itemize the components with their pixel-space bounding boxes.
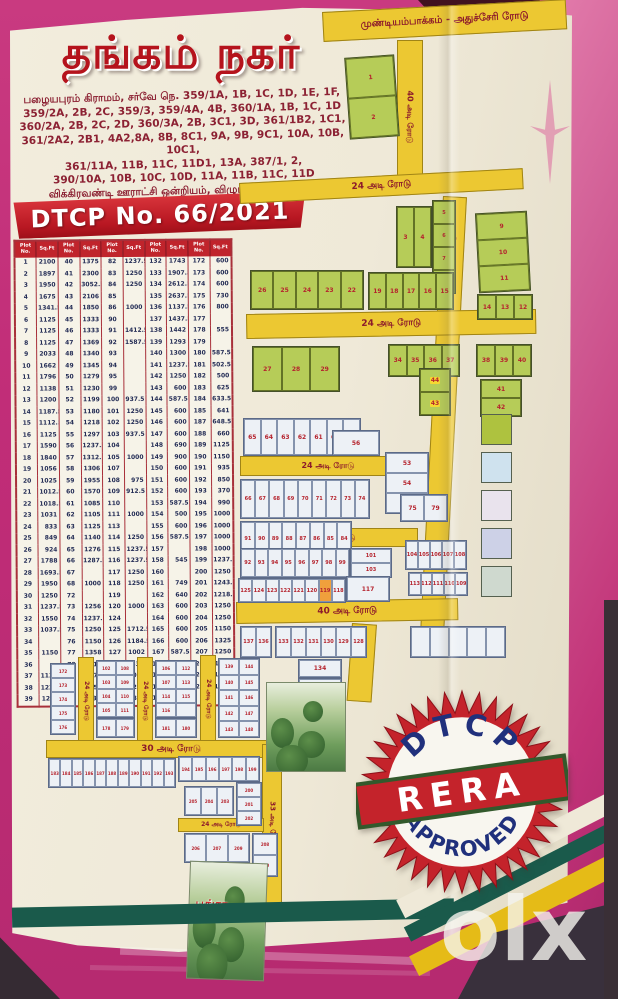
plot-cell: 67 [255,480,269,518]
plotno-cell: 202 [190,589,212,601]
plotno-cell: 185 [189,405,211,417]
plotno-cell: 18 [16,453,38,465]
plot-cell: 99 [336,549,350,577]
plot-cell: 79 [424,495,447,521]
plot-cell: 4 [414,207,431,267]
sqft-cell [210,336,232,348]
plotno-cell: 58 [59,464,81,476]
sqft-cell: 587.5 [169,647,191,659]
road-label: 40 அடி ரோடு [405,90,415,143]
sqft-cell: 1412.5 [123,325,145,337]
plot-cluster: 56 [332,430,380,456]
sqft-cell: 1312.5 [81,452,103,464]
plot-cell: 44 [420,369,450,392]
sqft-cell: 1250 [125,578,147,590]
plot-cell: 107 [156,675,176,689]
sqft-cell: 1955 [81,475,103,487]
plot-cell: 12 [514,295,532,319]
road-label: 24 அடி ரோடு [201,821,241,829]
plot-cell: 63 [277,419,294,455]
plotno-cell: 37 [17,671,39,683]
plotno-cell: 56 [59,441,81,453]
legend-swatch [481,528,512,559]
sqft-cell: 1840 [38,452,60,464]
plot-cell: 26 [251,271,273,309]
plot-cell: 104 [406,541,418,569]
sqft-cell: 1000 [125,509,147,521]
plotno-cell: 149 [146,452,168,464]
plotno-cell: 102 [102,418,124,430]
sqft-cell: 1199 [81,395,103,407]
plotno-cell: 184 [189,394,211,406]
plot-cell: 139 [219,659,239,675]
sqft-cell: 502.5 [210,359,232,371]
sqft-cell: 833 [38,521,60,533]
plot-cluster: 106112107113114115116 [155,660,197,718]
plot-cell: 134 [299,660,341,677]
plotno-cell: 4 [15,292,37,304]
sqft-cell: 1333 [80,326,102,338]
plot-cell: 207 [206,834,227,862]
plot-cell: 198 [232,757,245,781]
plot-cell: 195 [192,757,205,781]
sqft-cell: 1150 [211,451,233,463]
sqft-cell: 648.5 [211,417,233,429]
plotno-cell: 45 [58,314,80,326]
plot-cluster: 133132131130129128 [275,626,367,658]
highlighted-plot-number: 44 [430,377,440,384]
road: 24 அடி ரோடு [200,655,216,743]
plot-cell: 10 [477,238,528,267]
page-title: தங்கம் நகர் [16,26,346,85]
plotno-cell: 5 [15,303,37,315]
plotno-cell: 39 [18,694,40,707]
plot-cluster: 1918171615 [368,272,454,310]
plot-cell: 106 [430,541,442,569]
sqft-cell: 1237.5 [167,360,189,372]
plotno-cell: 157 [147,544,169,556]
plotno-cell: 35 [17,648,39,660]
plotno-cell: 28 [17,568,39,580]
plot-cell: 61 [310,419,327,455]
plot-cell: 15 [436,273,453,309]
plotno-cell: 12 [15,384,37,396]
plot-cell: 192 [152,759,163,787]
sqft-cell: 1187.5 [37,406,59,418]
sqft-cell: 600 [169,613,191,625]
plotno-cell: 132 [145,256,167,268]
sqft-cell: 1712.5 [125,624,147,636]
plot-cell: 111 [116,703,135,717]
plotno-cell: 92 [102,337,124,349]
plot-cell: 75 [401,495,424,521]
sqft-cell: 1950 [36,280,58,292]
sqft-cell: 1184.5 [126,636,148,648]
plot-cell: 197 [219,757,232,781]
dtcp-rera-approved-stamp: DTCPAPPROVEDRERA [356,686,568,898]
plot-cell: 38 [477,345,495,376]
sqft-cell: 545 [168,555,190,567]
sqft-cell: 1550 [39,613,61,625]
plotno-cell: 2 [15,269,37,281]
plot-cell: 114 [156,689,176,703]
sqft-cell [124,360,146,372]
plotno-cell: 61 [60,498,82,510]
plot-cell: 205 [185,787,201,815]
sqft-cell: 1150 [82,636,104,648]
plotno-cell: 110 [103,498,125,510]
plotno-cell: 194 [190,497,212,509]
plot-cluster: 125124123122121120119118 [238,578,346,603]
plot-cluster: 181180 [155,718,197,738]
plotno-cell: 201 [190,578,212,590]
plot-cell: 14 [478,295,496,319]
sqft-cell: 1375 [80,257,102,269]
plotno-cell: 73 [60,602,82,614]
sqft-cell: 975 [124,475,146,487]
flyer-photo: தங்கம் நகர் பழையபுரம் கிராமம், சர்வே நெ.… [0,0,618,999]
plotno-cell: 65 [60,544,82,556]
sqft-cell: 600 [168,429,190,441]
plotno-cell: 14 [16,407,38,419]
plotno-cell: 126 [104,636,126,648]
plot-cell: 201 [237,797,261,811]
plot-cell: 123 [266,579,279,602]
plotno-cell: 151 [146,475,168,487]
plot-cell: 183 [49,759,60,787]
plot-cell: 73 [341,480,355,518]
sqft-cell: 1250 [82,625,104,637]
plot-cell: 110 [116,689,135,703]
plotno-cell: 8 [15,338,37,350]
legend-swatch [481,490,512,521]
sqft-cell: 1031 [38,510,60,522]
plotno-cell: 83 [101,268,123,280]
sqft-cell: 749 [169,578,191,590]
plot-cell: 103 [351,563,391,577]
plotno-cell: 72 [60,590,82,602]
sqft-cell: 2106 [80,291,102,303]
plot-cell: 105 [418,541,430,569]
plot-cell: 101 [351,549,391,563]
plotno-cell: 176 [188,302,210,314]
plotno-cell: 108 [103,475,125,487]
plotno-cell: 180 [189,348,211,360]
plotno-cell: 59 [59,475,81,487]
sqft-cell: 912.5 [125,486,147,498]
plotno-cell: 143 [145,383,167,395]
plot-cell: 122 [279,579,292,602]
plot-cluster: 139144140145141146142147143148 [218,658,260,738]
sqft-cell: 690 [168,440,190,452]
plotno-cell: 31 [17,602,39,614]
plotno-cell: 47 [58,337,80,349]
sqft-cell: 1570 [81,487,103,499]
plot-cluster: 104105106107108 [405,540,467,570]
plotno-cell: 16 [16,430,38,442]
sqft-cell: 1000 [212,532,234,544]
col-header: Sq.Ft [123,240,145,257]
sqft-cell: 730 [210,290,232,302]
sqft-cell: 1137.5 [167,302,189,314]
col-header: Sq.Ft [166,240,188,257]
sqft-cell [168,567,190,579]
plotno-cell: 188 [189,428,211,440]
tree-foliage [196,943,228,981]
plotno-cell: 60 [59,487,81,499]
plot-cell: 69 [284,480,298,518]
plotno-cell: 140 [145,348,167,360]
sqft-cell [125,613,147,625]
plotno-cell: 139 [145,337,167,349]
plotno-cell: 205 [191,624,213,636]
plot-cell: 173 [51,678,75,692]
plot-cluster: 137136 [240,626,272,658]
sqft-cell: 1150 [212,624,234,636]
plot-cell: 102 [97,661,116,675]
plotno-cell: 172 [188,256,210,268]
plot-cell: 94 [268,549,282,577]
plot-cell: 53 [386,453,428,473]
plot-cell: 96 [295,549,309,577]
plot-cell: 148 [239,721,259,737]
sqft-cell: 2100 [36,257,58,269]
plot-cell: 172 [51,664,75,678]
plot-cluster: 134 [298,659,342,678]
road-label: 24 அடி ரோடு [361,318,421,330]
plot-cell: 27 [253,347,282,391]
plotno-cell: 203 [190,601,212,613]
plot-cell: 108 [454,541,466,569]
plotno-cell: 40 [58,257,80,269]
plotno-cell: 182 [189,371,211,383]
sqft-cell: 587.5 [210,348,232,360]
sqft-cell: 587.5 [167,394,189,406]
sqft-cell: 600 [168,475,190,487]
plot-cell: 28 [282,347,311,391]
plotno-cell: 24 [16,522,38,534]
col-header: Plot No. [144,240,166,257]
plot-cell: 98 [322,549,336,577]
col-header: Plot No. [101,240,123,257]
cloth-highlight [120,947,420,965]
plot-cell: 97 [309,549,323,577]
plotno-cell: 192 [190,474,212,486]
plotno-cell: 153 [146,498,168,510]
plotno-cell: 38 [17,683,39,695]
plot-cell: 110 [444,573,456,595]
sqft-cell: 1796 [37,372,59,384]
table-header-row: Plot No.Sq.FtPlot No.Sq.FtPlot No.Sq.FtP… [14,239,231,257]
plot-cell: 112 [176,661,196,675]
plot-cell: 29 [310,347,339,391]
plotno-cell: 145 [146,406,168,418]
plotno-cell: 25 [16,533,38,545]
col-header: Plot No. [188,239,210,256]
plot-cell: 13 [496,295,514,319]
plotno-cell: 100 [102,395,124,407]
plot-cell: 132 [291,627,306,657]
sqft-cell: 555 [210,325,232,337]
plotno-cell: 68 [60,579,82,591]
plotno-cell: 105 [103,452,125,464]
plotno-cell: 133 [145,268,167,280]
sqft-cell: 1237.5 [82,613,104,625]
park-photo [266,682,346,772]
sqft-cell: 849 [38,533,60,545]
plot-cell: 116 [156,703,176,717]
sqft-cell: 587.5 [168,532,190,544]
plot-cell: 22 [341,271,363,309]
sqft-cell: 1243.8 [212,578,234,590]
legend-swatch [481,566,512,597]
plot-cell: 206 [185,834,206,862]
col-header: Sq.Ft [210,239,232,256]
plotno-cell: 181 [189,359,211,371]
plotno-cell: 50 [59,372,81,384]
plot-cell: 174 [51,692,75,706]
sqft-cell: 1218 [81,418,103,430]
plot-cluster: 183184185186187188189190191192193 [48,758,176,788]
sqft-cell: 1218.5 [212,589,234,601]
plotno-cell: 85 [101,291,123,303]
plotno-cell: 198 [190,543,212,555]
plot-cell: 186 [83,759,94,787]
plotno-cell: 52 [59,395,81,407]
sqft-cell: 935 [211,463,233,475]
compass-icon [528,80,572,184]
plot-cell: 93 [255,549,269,577]
plot-cluster: 141312 [477,294,533,320]
sqft-cell: 600 [168,521,190,533]
plotno-cell: 17 [16,441,38,453]
plotno-cell: 191 [189,463,211,475]
plot-cell: 137 [241,627,256,657]
sqft-cell: 600 [210,267,232,279]
plot-cell: 62 [294,419,311,455]
plotno-cell: 34 [17,637,39,649]
tree-foliage [276,745,307,772]
plotno-cell: 118 [103,578,125,590]
plotno-cell: 23 [16,510,38,522]
plot-cell: 200 [237,783,261,797]
plot-cluster: 7579 [400,494,448,522]
sqft-cell: 370 [211,486,233,498]
plotno-cell: 64 [60,533,82,545]
plot-cell: 18 [386,273,403,309]
sqft-cell: 1237.5 [125,544,147,556]
sqft-cell [124,348,146,360]
plot-cell: 129 [336,627,351,657]
plotno-cell: 33 [17,625,39,637]
plotno-cell: 1 [14,257,36,269]
plot-cell: 121 [292,579,305,602]
plotno-cell: 148 [146,440,168,452]
plotno-cell: 57 [59,452,81,464]
legend-swatch [481,414,512,445]
road: 40 அடி ரோடு [397,40,423,194]
plot-cell: 194 [179,757,192,781]
photo-shadow-right-edge [604,600,618,999]
plot-cell: 146 [239,690,259,706]
sqft-cell: 1085 [81,498,103,510]
plotno-cell: 22 [16,499,38,511]
plot-cell: 23 [318,271,340,309]
sqft-cell: 924 [38,544,60,556]
plot-cluster: 4443 [419,368,451,416]
sqft-cell: 1140 [81,533,103,545]
plotno-cell: 156 [147,532,169,544]
plotno-cell: 44 [58,303,80,315]
plotno-cell: 62 [60,510,82,522]
plotno-cell: 164 [147,613,169,625]
plotno-cell: 193 [190,486,212,498]
plot-cell: 74 [355,480,369,518]
sqft-cell: 1012.5 [38,487,60,499]
plotno-cell: 178 [188,325,210,337]
plotno-cell: 46 [58,326,80,338]
plotno-cell: 90 [102,314,124,326]
plot-cell: 188 [106,759,117,787]
plot-cell: 103 [97,675,116,689]
plot-cell: 131 [306,627,321,657]
sqft-cell: 1230 [80,383,102,395]
sqft-cell: 1590 [37,441,59,453]
plotno-cell: 117 [103,567,125,579]
plotno-cell: 55 [59,429,81,441]
sqft-cell: 1250 [125,532,147,544]
plotno-cell: 144 [146,394,168,406]
plotno-cell: 165 [147,624,169,636]
olx-watermark: olx [440,886,587,974]
plot-cluster: 113112111110109 [408,572,468,596]
road-label: 40 அடி ரோடு [317,605,377,617]
plot-cell: 9 [476,212,527,241]
plot-cluster: 194195196197198199 [178,756,260,782]
plotno-cell: 75 [60,625,82,637]
plot-cell: 176 [51,720,75,734]
sqft-cell: 600 [167,406,189,418]
plot-cluster: 117 [346,576,390,602]
sqft-cell: 1105 [81,510,103,522]
plotno-cell: 196 [190,520,212,532]
sqft-cell: 1056 [38,464,60,476]
sqft-cell: 1000 [125,601,147,613]
sqft-cell: 1250 [212,566,234,578]
plotno-cell: 162 [147,590,169,602]
plot-cell: 130 [321,627,336,657]
plot-cell: 142 [219,706,239,722]
plotno-cell: 120 [104,601,126,613]
sqft-cell: 1907.5 [166,268,188,280]
sqft-cell: 500 [210,371,232,383]
plot-cell: 208 [253,834,277,855]
plot-cell [411,627,430,657]
sqft-cell [124,371,146,383]
plot-cluster: 205204203 [184,786,234,816]
plot-cluster: 172173174175176 [50,663,76,735]
sqft-cell: 1250 [125,567,147,579]
plot-cell: 24 [296,271,318,309]
plotno-cell: 146 [146,417,168,429]
sqft-cell: 900 [168,452,190,464]
plotno-cell: 114 [103,532,125,544]
sqft-cell: 1237.5 [125,555,147,567]
plotno-cell: 175 [188,290,210,302]
sqft-cell: 3052.5 [80,280,102,292]
plotno-cell: 107 [103,464,125,476]
plot-cell: 115 [176,689,196,703]
